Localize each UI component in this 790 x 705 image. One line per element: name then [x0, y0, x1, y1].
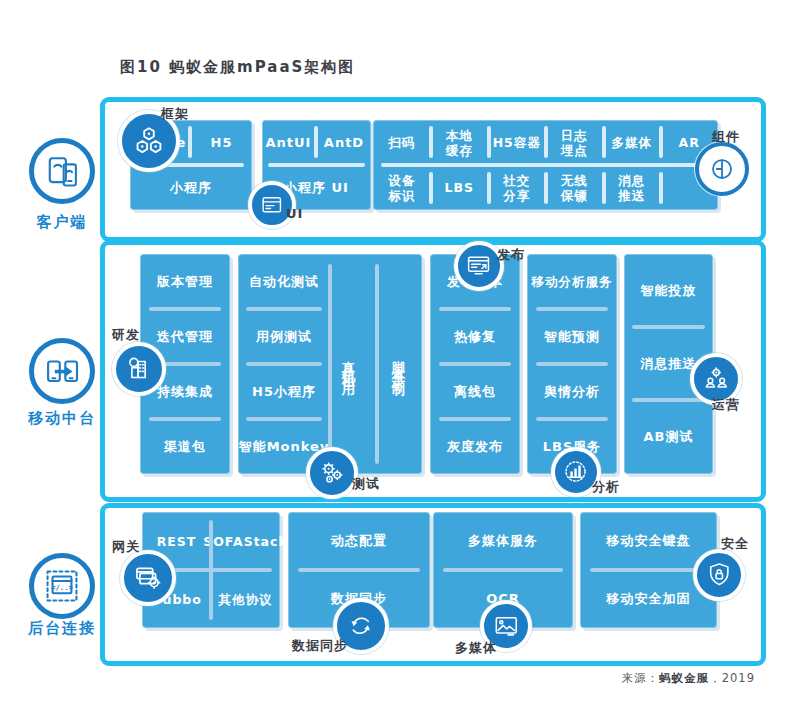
- divider: [246, 307, 322, 311]
- cell-lbs: LBS: [431, 165, 489, 210]
- cell-mobile-analysis: 移动分析服务: [527, 254, 617, 309]
- cell-automated-test: 自动化测试: [238, 254, 330, 309]
- component-label: 组件: [712, 128, 740, 146]
- backend-rail-label: 后台连接: [14, 619, 110, 638]
- gateway-icon: [120, 550, 176, 606]
- divider: [246, 417, 322, 421]
- gateway-label: 网关: [112, 538, 140, 556]
- divider: [314, 126, 318, 158]
- cell-message-push: 消息 推送: [603, 165, 661, 210]
- component-block: 扫码 本地 缓存 H5容器 日志 埋点 多媒体 AR 设备 标识 LBS 社交 …: [373, 120, 718, 210]
- cell-social-share: 社交 分享: [488, 165, 546, 210]
- cell-device-id: 设备 标识: [373, 165, 431, 210]
- divider: [429, 126, 433, 158]
- ui-label: UI: [286, 206, 303, 221]
- divider: [536, 362, 608, 366]
- test-label: 测试: [352, 475, 380, 493]
- cell-antui: AntUI: [262, 120, 315, 165]
- cell-multimedia: 多媒体: [603, 120, 661, 165]
- divider: [632, 398, 705, 402]
- divider: [246, 362, 322, 366]
- middle-rail-icon: [29, 338, 95, 404]
- divider: [439, 417, 511, 421]
- ui-icon: [248, 181, 296, 229]
- shield-lock-icon: [693, 549, 745, 601]
- cell-wireless-guard: 无线 保镖: [546, 165, 604, 210]
- phone-transfer-icon: [42, 351, 82, 391]
- svg-text:</..>: </..>: [51, 583, 73, 592]
- cell-scan: 扫码: [373, 120, 431, 165]
- cell-dynamic-config: 动态配置: [288, 512, 430, 570]
- divider: [590, 568, 707, 572]
- divider: [429, 172, 433, 204]
- analysis-label: 分析: [592, 478, 620, 496]
- cell-antd: AntD: [317, 120, 371, 165]
- test-icon: [306, 447, 358, 499]
- cell-offline-package: 离线包: [430, 364, 520, 419]
- cell-multimedia-service: 多媒体服务: [433, 512, 573, 570]
- framework-label: 框架: [161, 105, 189, 123]
- divider: [487, 126, 491, 158]
- cell-script-recording: 脚本录制: [378, 254, 420, 474]
- client-section: 框架 Native H5 小程序 AntUI AntD 小程序 UI UI 扫码: [100, 97, 766, 242]
- divider: [544, 172, 548, 204]
- cell-smart-prediction: 智能预测: [527, 309, 617, 364]
- cell-smart-delivery: 智能投放: [624, 254, 713, 327]
- divider: [659, 172, 663, 204]
- divider: [544, 126, 548, 158]
- cell-gray-release: 灰度发布: [430, 419, 520, 474]
- cell-h5-container: H5容器: [488, 120, 546, 165]
- divider: [188, 126, 192, 158]
- divider: [268, 163, 365, 167]
- operation-label: 运营: [712, 396, 740, 414]
- media-label: 多媒体: [455, 639, 497, 657]
- analysis-block: 移动分析服务 智能预测 舆情分析 LBS服务: [527, 254, 617, 474]
- backend-section: 网关 REST SOFAStack Dubbo 其他协议 动态配置 数据同步: [100, 503, 766, 666]
- divider: [536, 417, 608, 421]
- cell-ab-test: AB测试: [624, 400, 713, 474]
- divider: [443, 568, 563, 572]
- component-icon: [695, 142, 749, 196]
- middle-rail-label: 移动中台: [14, 409, 110, 428]
- sync-label: 数据同步: [292, 637, 348, 655]
- divider: [439, 362, 511, 366]
- divider: [439, 307, 511, 311]
- mobile-devices-icon: [42, 151, 82, 191]
- source-name: 蚂蚁金服: [659, 671, 709, 685]
- divider: [149, 307, 221, 311]
- divider: [298, 568, 420, 572]
- cell-other-protocols: 其他协议: [211, 570, 280, 628]
- middle-section: 研发 版本管理 迭代管理 持续集成 渠道包 自动化测试 用例测试 H5小程序: [100, 240, 766, 502]
- backend-window-icon: </..>: [42, 566, 82, 606]
- figure-title: 图10 蚂蚁金服mPaaS架构图: [120, 58, 355, 77]
- release-label: 发布: [497, 246, 525, 264]
- divider: [536, 307, 608, 311]
- cell-channel-package: 渠道包: [140, 419, 230, 474]
- source-year: ，2019: [709, 671, 755, 685]
- cell-real-device-rental: 真机租用: [330, 254, 368, 474]
- client-rail-label: 客户端: [14, 213, 110, 232]
- cell-case-test: 用例测试: [238, 309, 330, 364]
- divider: [602, 126, 606, 158]
- divider: [659, 126, 663, 158]
- client-rail-icon: [29, 138, 95, 204]
- dev-label: 研发: [112, 326, 140, 344]
- cell-local-cache: 本地 缓存: [431, 120, 489, 165]
- divider: [381, 163, 710, 167]
- cell-sentiment-analysis: 舆情分析: [527, 364, 617, 419]
- security-label: 安全: [721, 535, 749, 553]
- dev-icon: [112, 342, 166, 396]
- source-note: 来源：蚂蚁金服，2019: [555, 671, 755, 686]
- cell-log-tracking: 日志 埋点: [546, 120, 604, 165]
- cell-h5-miniprogram: H5小程序: [238, 364, 330, 419]
- backend-rail-icon: </..>: [29, 553, 95, 619]
- test-block: 自动化测试 用例测试 H5小程序 智能Monkey 真机租用 脚本录制: [238, 254, 422, 474]
- mpaas-architecture-diagram: 图10 蚂蚁金服mPaaS架构图 客户端 移动中台 </..> 后台连接: [0, 0, 790, 705]
- divider: [602, 172, 606, 204]
- divider: [149, 417, 221, 421]
- cell-version-mgmt: 版本管理: [140, 254, 230, 309]
- divider: [487, 172, 491, 204]
- source-prefix: 来源：: [622, 671, 660, 685]
- cell-h5: H5: [191, 120, 252, 165]
- cell-sofastack: SOFAStack: [211, 512, 280, 570]
- cell-hotfix: 热修复: [430, 309, 520, 364]
- divider: [632, 325, 705, 329]
